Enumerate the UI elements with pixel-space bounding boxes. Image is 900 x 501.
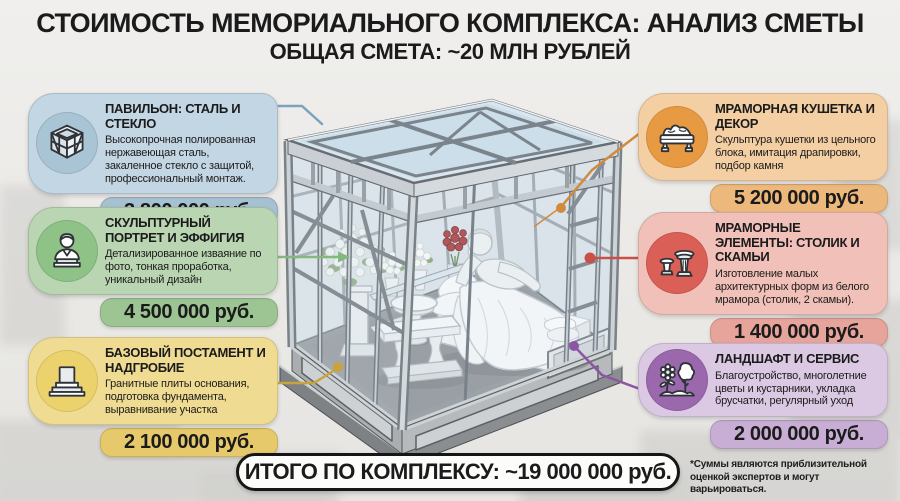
- connector-line-pavilion: [278, 106, 322, 124]
- card-couch-body: МРАМОРНАЯ КУШЕТКА И ДЕКОР Скульптура куш…: [638, 93, 888, 181]
- card-description: Высокопрочная полированная нержавеющая с…: [105, 134, 269, 186]
- card-title: ЛАНДШАФТ И СЕРВИС: [715, 352, 879, 367]
- card-pedestal-body: БАЗОВЫЙ ПОСТАМЕНТ И НАДГРОБИЕ Гранитные …: [28, 337, 278, 425]
- card-title: БАЗОВЫЙ ПОСТАМЕНТ И НАДГРОБИЕ: [105, 346, 269, 375]
- card-description: Изготовление малых архитектурных форм из…: [715, 268, 879, 307]
- couch-icon: [646, 106, 708, 168]
- card-title: МРАМОРНАЯ КУШЕТКА И ДЕКОР: [715, 102, 879, 131]
- card-pedestal: БАЗОВЫЙ ПОСТАМЕНТ И НАДГРОБИЕ Гранитные …: [28, 337, 278, 457]
- card-description: Благоустройство, многолетние цветы и кус…: [715, 370, 879, 409]
- card-title: ПАВИЛЬОН: СТАЛЬ И СТЕКЛО: [105, 102, 269, 131]
- card-price: 5 200 000 руб.: [710, 184, 888, 213]
- card-landscape: ЛАНДШАФТ И СЕРВИС Благоустройство, много…: [638, 343, 888, 449]
- card-couch: МРАМОРНАЯ КУШЕТКА И ДЕКОР Скульптура куш…: [638, 93, 888, 213]
- infographic-page: { "header": { "title": "СТОИМОСТЬ МЕМОРИ…: [0, 0, 900, 501]
- card-price: 4 500 000 руб.: [100, 298, 278, 327]
- card-sculpture-body: СКУЛЬПТУРНЫЙ ПОРТРЕТ И ЭФФИГИЯ Детализир…: [28, 207, 278, 295]
- card-description: Гранитные плиты основания, подготовка фу…: [105, 378, 269, 417]
- card-title: МРАМОРНЫЕ ЭЛЕМЕНТЫ: СТОЛИК И СКАМЬИ: [715, 221, 879, 265]
- footnote: *Суммы являются приблизительной оценкой …: [690, 459, 886, 497]
- card-description: Скульптура кушетки из цельного блока, им…: [715, 134, 879, 173]
- page-subtitle: ОБЩАЯ СМЕТА: ~20 МЛН РУБЛЕЙ: [0, 39, 900, 65]
- card-sculpture: СКУЛЬПТУРНЫЙ ПОРТРЕТ И ЭФФИГИЯ Детализир…: [28, 207, 278, 327]
- table-bench-icon: [646, 232, 708, 294]
- bust-icon: [36, 220, 98, 282]
- card-marble-elements-body: МРАМОРНЫЕ ЭЛЕМЕНТЫ: СТОЛИК И СКАМЬИ Изго…: [638, 212, 888, 315]
- pavilion-icon: [36, 112, 98, 174]
- page-title: СТОИМОСТЬ МЕМОРИАЛЬНОГО КОМПЛЕКСА: АНАЛИ…: [0, 8, 900, 39]
- card-pavilion-body: ПАВИЛЬОН: СТАЛЬ И СТЕКЛО Высокопрочная п…: [28, 93, 278, 194]
- header: СТОИМОСТЬ МЕМОРИАЛЬНОГО КОМПЛЕКСА: АНАЛИ…: [0, 8, 900, 65]
- card-marble-elements: МРАМОРНЫЕ ЭЛЕМЕНТЫ: СТОЛИК И СКАМЬИ Изго…: [638, 212, 888, 347]
- pedestal-icon: [36, 350, 98, 412]
- card-description: Детализированное изваяние по фото, тонка…: [105, 248, 269, 287]
- landscape-icon: [646, 349, 708, 411]
- card-landscape-body: ЛАНДШАФТ И СЕРВИС Благоустройство, много…: [638, 343, 888, 417]
- card-title: СКУЛЬПТУРНЫЙ ПОРТРЕТ И ЭФФИГИЯ: [105, 216, 269, 245]
- card-price: 2 000 000 руб.: [710, 420, 888, 449]
- total-pill: ИТОГО ПО КОМПЛЕКСУ: ~19 000 000 руб.: [236, 453, 680, 491]
